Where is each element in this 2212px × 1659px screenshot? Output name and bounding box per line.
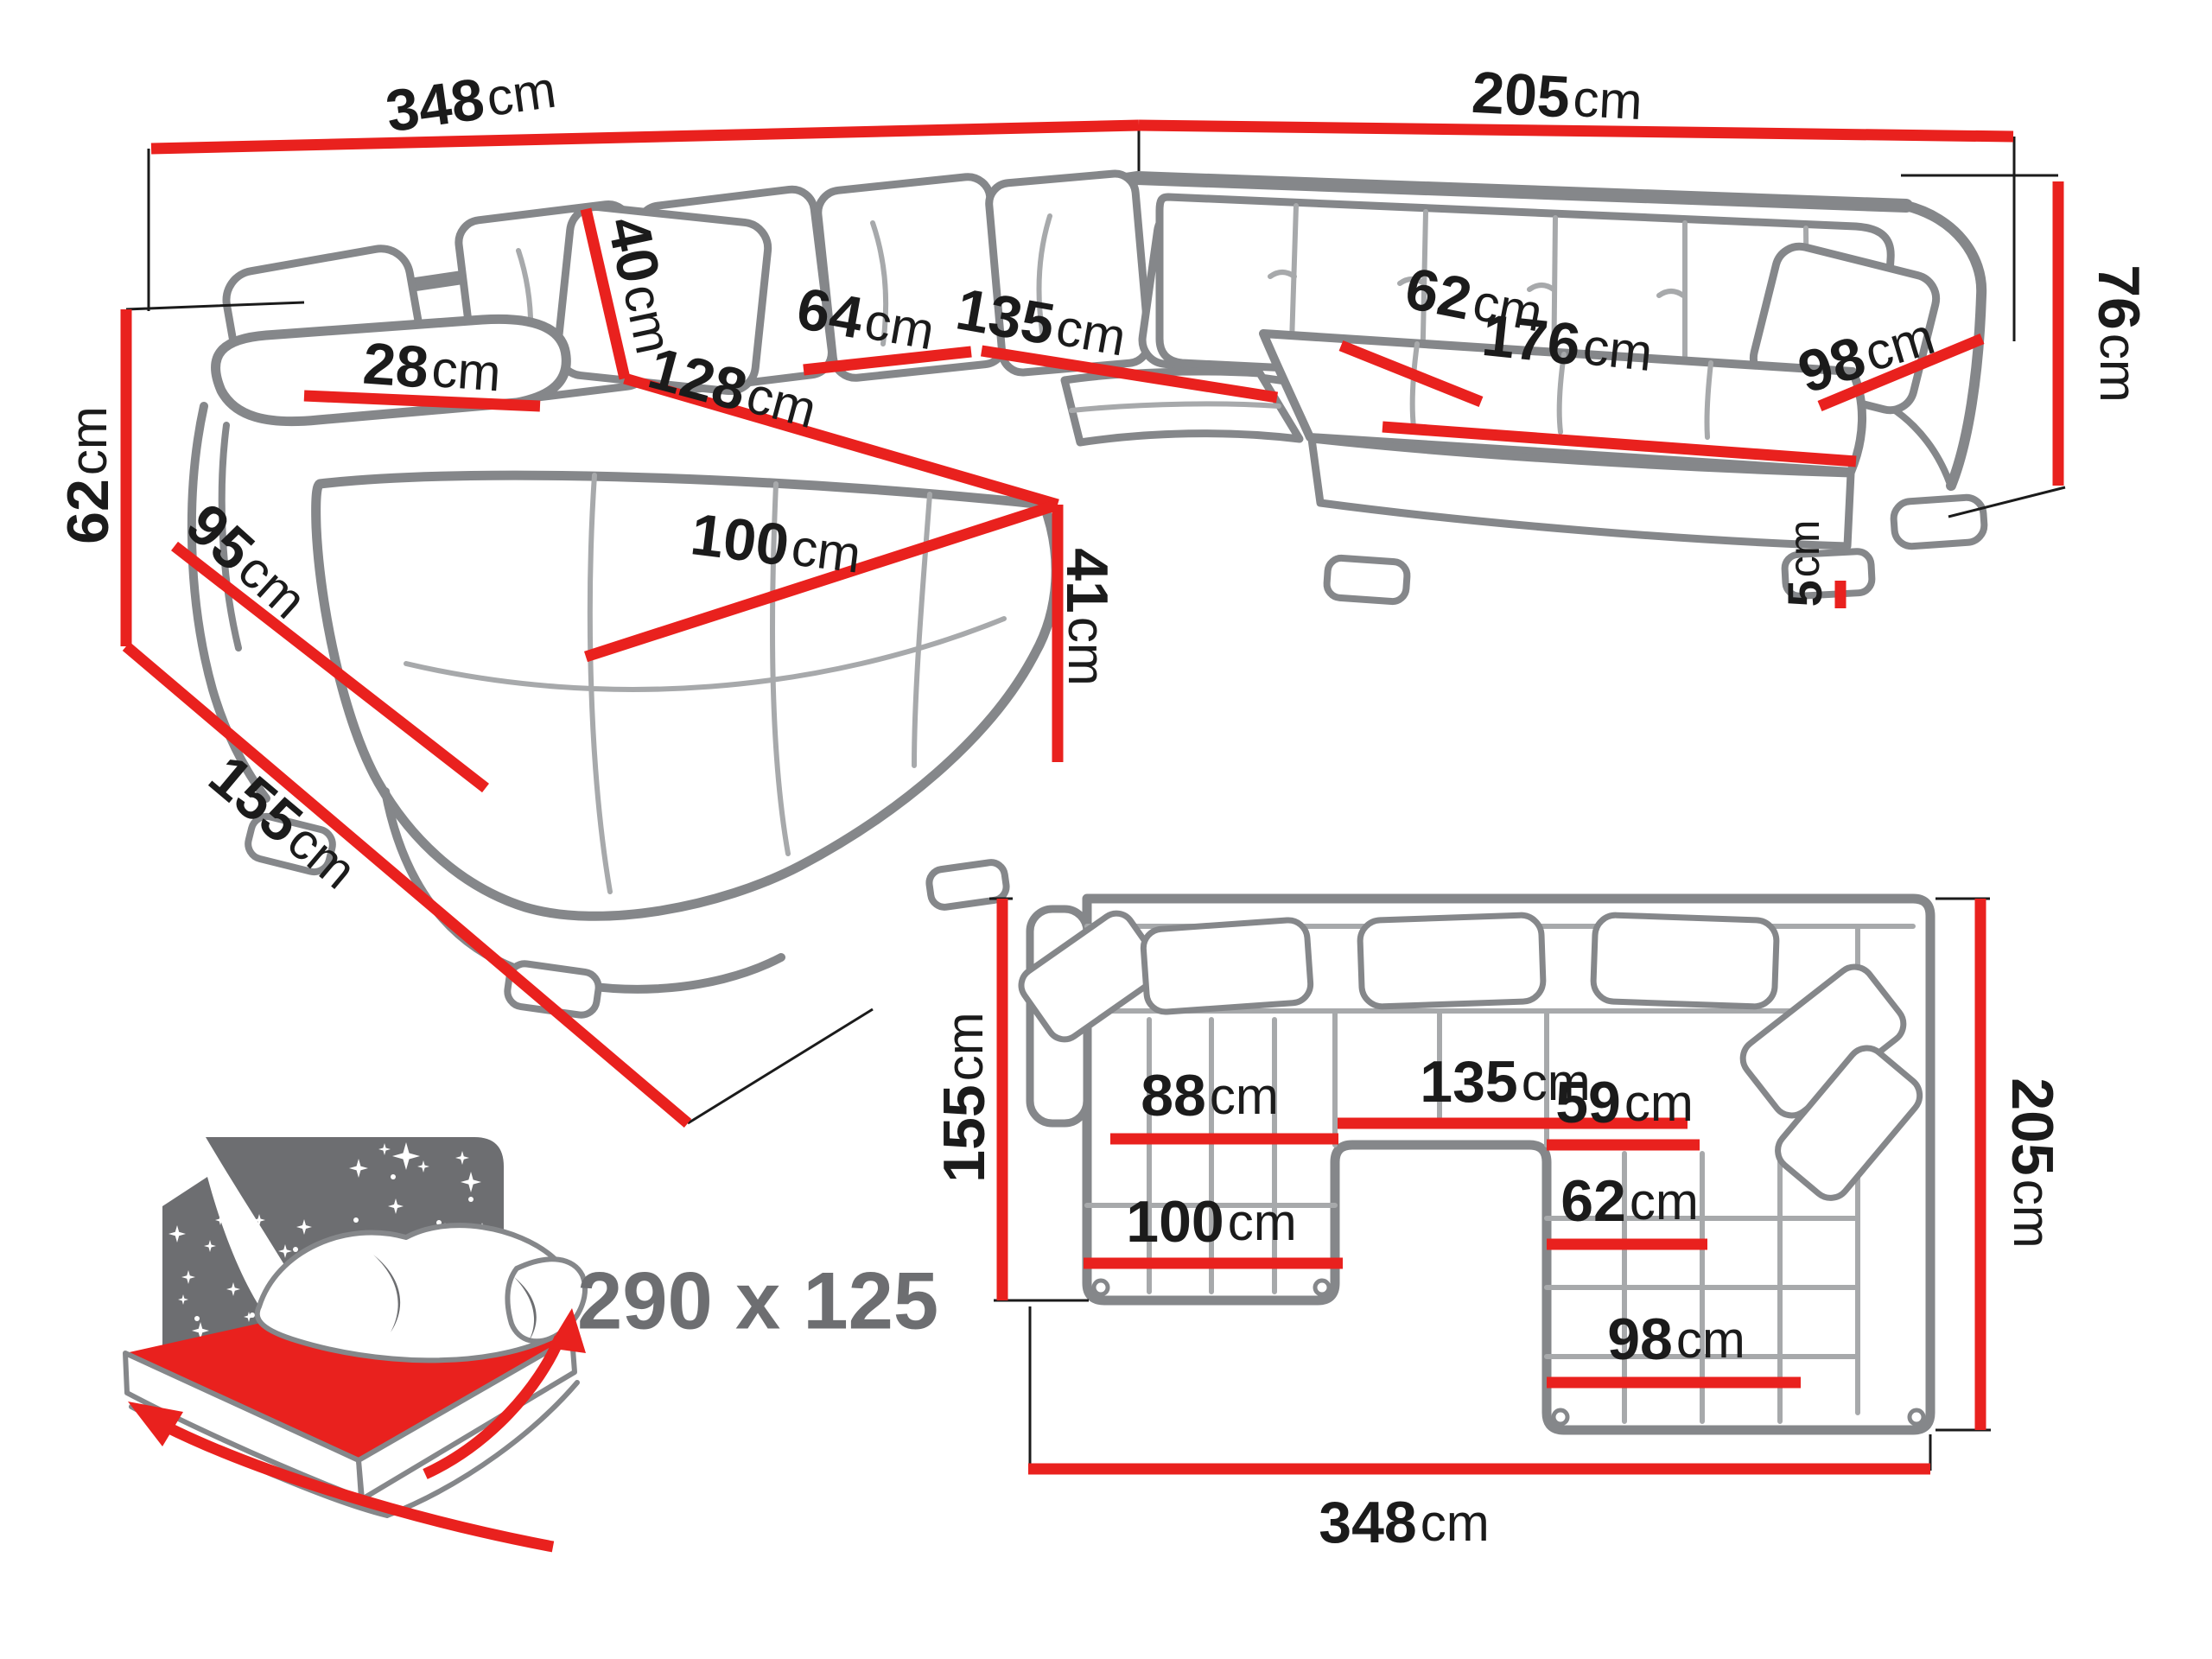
plan-dim-label-88: 88cm [1141, 1063, 1279, 1128]
sleeping-function-icon: 290 x 125 [125, 1137, 938, 1547]
plan-dim-label-155: 155cm [931, 1012, 997, 1182]
plan-dim-label-205: 205cm [1999, 1077, 2065, 1248]
sofa-plan-drawing [1014, 899, 1930, 1430]
dim-label-348: 348cm [382, 56, 560, 145]
plan-dim-label-348: 348cm [1319, 1490, 1489, 1555]
plan-dim-label-98: 98cm [1607, 1306, 1745, 1372]
dim-line-205 [1139, 125, 2013, 137]
sleeping-size-label: 290 x 125 [577, 1255, 938, 1346]
dim-label-5: 5cm [1777, 520, 1832, 607]
plan-dim-label-62: 62cm [1560, 1168, 1699, 1234]
dim-label-76: 76cm [2086, 264, 2152, 403]
dim-label-41: 41cm [1054, 548, 1120, 686]
dim-line-348 [151, 125, 1139, 149]
dim-label-62-left: 62cm [55, 406, 121, 544]
dim-label-155: 155cm [197, 742, 370, 902]
plan-view: 155cm 205cm 348cm 135cm 88cm 59cm 62cm 9… [931, 899, 2065, 1555]
plan-dim-label-59: 59cm [1555, 1070, 1694, 1135]
plan-dim-label-100: 100cm [1126, 1189, 1296, 1255]
dim-label-205: 205cm [1470, 60, 1643, 134]
furniture-dimension-sheet: 348cm 205cm 76cm 62cm 155cm 28cm 95cm 40… [0, 0, 2212, 1659]
